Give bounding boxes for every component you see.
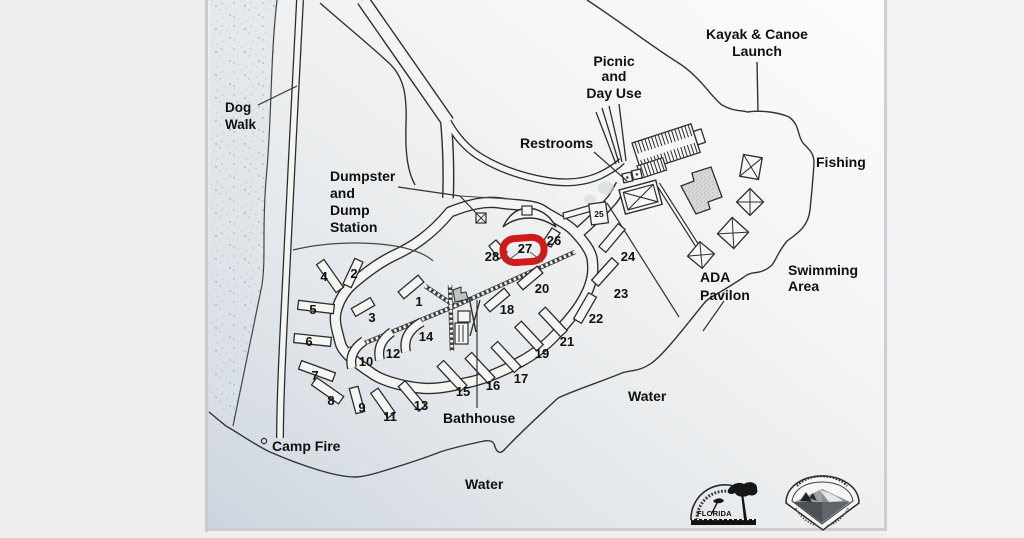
- svg-text:21: 21: [560, 334, 574, 349]
- svg-text:6: 6: [305, 334, 312, 349]
- svg-text:Fishing: Fishing: [816, 154, 866, 170]
- svg-text:Camp Fire: Camp Fire: [272, 438, 341, 454]
- svg-text:22: 22: [589, 311, 603, 326]
- svg-text:28: 28: [485, 249, 499, 264]
- svg-text:Bathhouse: Bathhouse: [443, 410, 516, 426]
- svg-text:and: and: [602, 68, 627, 84]
- svg-text:2: 2: [350, 266, 357, 281]
- svg-text:25: 25: [594, 209, 604, 219]
- svg-text:4: 4: [320, 269, 328, 284]
- svg-text:Dump: Dump: [330, 202, 370, 218]
- svg-text:26: 26: [547, 233, 561, 248]
- svg-text:7: 7: [311, 368, 318, 383]
- svg-text:14: 14: [419, 329, 434, 344]
- svg-text:19: 19: [535, 346, 549, 361]
- svg-text:12: 12: [386, 346, 400, 361]
- svg-text:11: 11: [383, 409, 397, 424]
- svg-text:27: 27: [518, 241, 532, 256]
- svg-text:Restrooms: Restrooms: [520, 135, 593, 151]
- svg-text:13: 13: [414, 398, 428, 413]
- svg-text:Walk: Walk: [225, 117, 256, 132]
- svg-text:Swimming: Swimming: [788, 262, 858, 278]
- svg-text:5: 5: [309, 302, 316, 317]
- svg-text:3: 3: [368, 310, 375, 325]
- svg-text:Launch: Launch: [732, 43, 782, 59]
- svg-text:Day Use: Day Use: [586, 85, 641, 101]
- svg-text:15: 15: [456, 384, 470, 399]
- svg-text:FLORIDA: FLORIDA: [697, 509, 732, 518]
- svg-text:20: 20: [535, 281, 549, 296]
- svg-text:ADA: ADA: [700, 269, 730, 285]
- svg-text:18: 18: [500, 302, 514, 317]
- svg-text:8: 8: [327, 393, 334, 408]
- svg-text:23: 23: [614, 286, 628, 301]
- svg-text:17: 17: [514, 371, 528, 386]
- svg-text:Area: Area: [788, 278, 819, 294]
- svg-text:Pavilon: Pavilon: [700, 287, 750, 303]
- svg-text:Dumpster: Dumpster: [330, 168, 396, 184]
- svg-text:16: 16: [486, 378, 500, 393]
- svg-text:Dog: Dog: [225, 100, 251, 115]
- svg-text:Station: Station: [330, 219, 377, 235]
- svg-text:Water: Water: [628, 388, 667, 404]
- svg-text:10: 10: [359, 354, 373, 369]
- svg-text:and: and: [330, 185, 355, 201]
- svg-text:Water: Water: [465, 476, 504, 492]
- svg-text:9: 9: [358, 400, 365, 415]
- svg-text:24: 24: [621, 249, 636, 264]
- svg-text:1: 1: [415, 294, 422, 309]
- svg-text:Picnic: Picnic: [593, 53, 634, 69]
- svg-text:Kayak & Canoe: Kayak & Canoe: [706, 26, 808, 42]
